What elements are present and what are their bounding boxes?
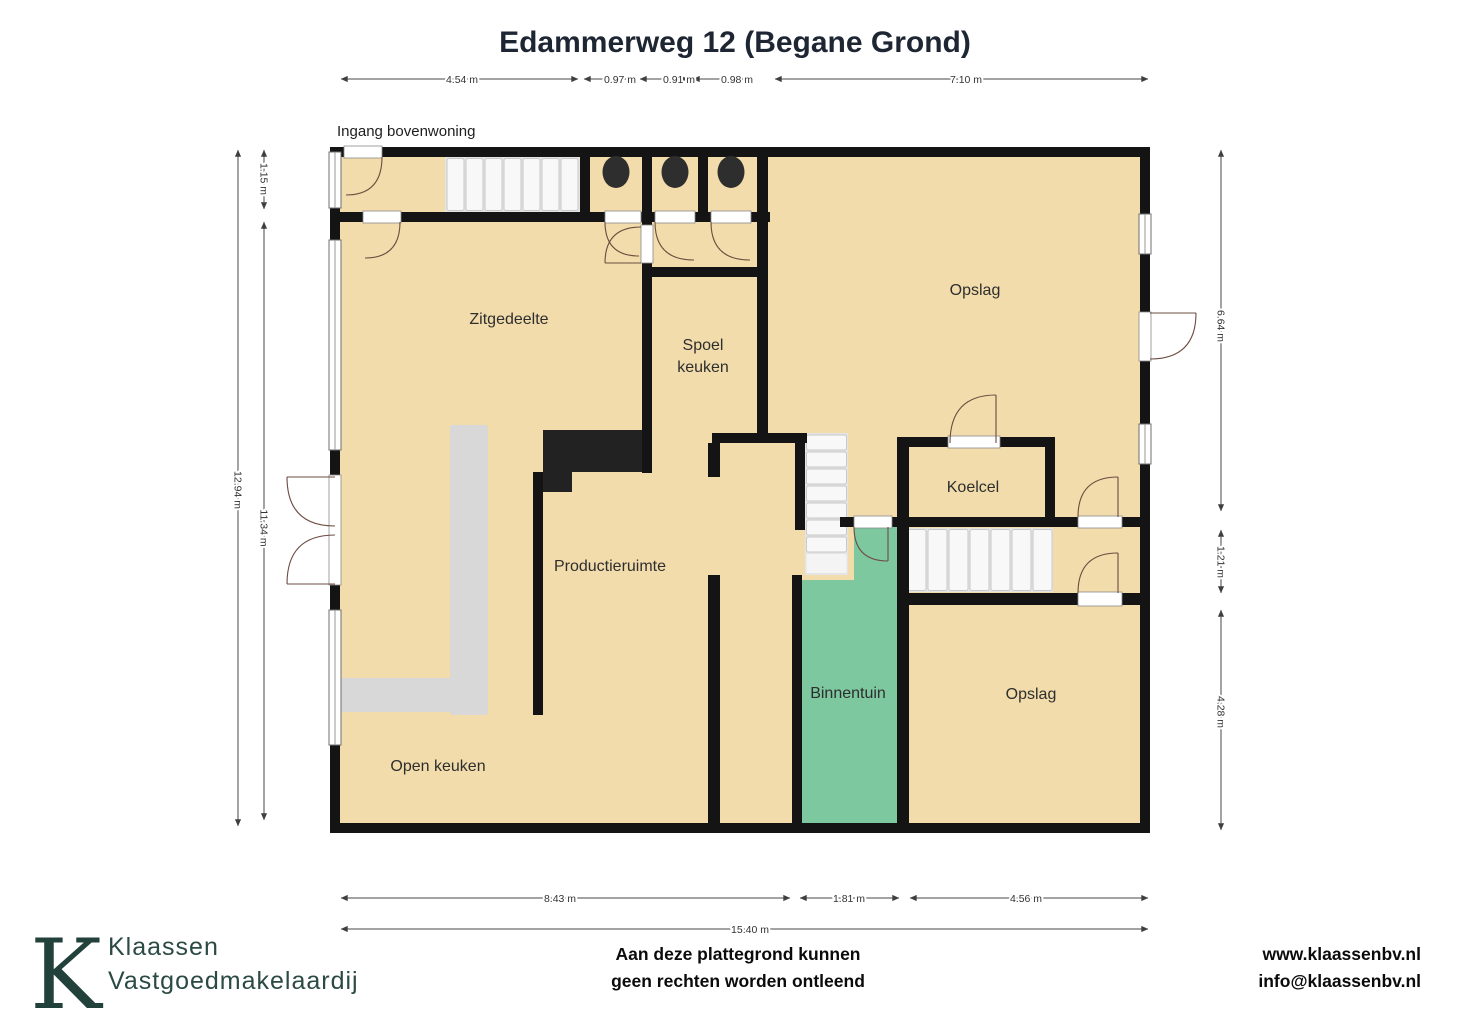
room-label-opslag-bottom: Opslag: [1006, 686, 1057, 703]
door-icon: [1139, 312, 1196, 361]
page-title: Edammerweg 12 (Begane Grond): [499, 26, 971, 59]
floor-plan: Zitgedeelte Spoel keuken Opslag Koelcel …: [287, 123, 1196, 833]
disclaimer-line-1: Aan deze plattegrond kunnen: [615, 944, 860, 964]
dim-top-4: 0.98 m: [721, 74, 753, 86]
window-icon: [329, 610, 341, 745]
dim-bottom-2: 1.81 m: [833, 893, 865, 905]
dim-left-1: 1.15 m: [258, 163, 270, 195]
toilet-icon: [718, 156, 745, 188]
entrance-note: Ingang bovenwoning: [337, 123, 475, 140]
toilet-icon: [603, 156, 630, 188]
staircase-storage: [905, 528, 1053, 592]
window-icon: [329, 152, 341, 208]
dim-total-width: 15.40 m: [731, 924, 769, 936]
room-label-open-keuken: Open keuken: [390, 758, 485, 775]
room-label-koelcel: Koelcel: [947, 479, 999, 496]
brand-suffix: Vastgoedmakelaardij: [108, 967, 359, 995]
window-icon: [329, 240, 341, 450]
dim-top-2: 0.97 m: [604, 74, 636, 86]
staircase-entrance: [445, 157, 580, 212]
toilet-icon: [662, 156, 689, 188]
window-icon: [1139, 424, 1151, 464]
disclaimer-line-2: geen rechten worden ontleend: [611, 971, 865, 991]
dim-top-5: 7.10 m: [950, 74, 982, 86]
dim-top-3: 0.91 m: [663, 74, 695, 86]
dim-bottom-1: 8.43 m: [544, 893, 576, 905]
dim-right-3: 4.28 m: [1215, 696, 1227, 728]
room-label-spoelkeuken-1: Spoel: [683, 337, 724, 354]
logo-k-icon: K: [30, 919, 104, 1031]
dim-left-3: 11.34 m: [258, 509, 270, 546]
footer-email-link[interactable]: info@klaassenbv.nl: [1258, 971, 1421, 991]
dim-bottom-3: 4.56 m: [1010, 893, 1042, 905]
dim-right-2: 1.21 m: [1215, 546, 1227, 578]
dim-left-2: 12.94 m: [232, 471, 244, 509]
room-label-binnentuin: Binnentuin: [810, 685, 886, 702]
footer: K Klaassen Vastgoedmakelaardij Aan deze …: [30, 919, 1421, 1031]
window-icon: [1139, 214, 1151, 254]
footer-website-link[interactable]: www.klaassenbv.nl: [1261, 944, 1421, 964]
dim-top-1: 4.54 m: [446, 74, 478, 86]
room-label-productieruimte: Productieruimte: [554, 558, 666, 575]
staircase-courtyard: [805, 433, 848, 575]
room-label-opslag-top: Opslag: [950, 282, 1001, 299]
double-door-icon: [287, 475, 341, 585]
floorplan-page: Edammerweg 12 (Begane Grond) 4.54 m 0.97…: [0, 0, 1466, 1033]
brand-name: Klaassen: [108, 933, 219, 961]
room-label-zitgedeelte: Zitgedeelte: [469, 311, 548, 328]
brand-logo: K Klaassen Vastgoedmakelaardij: [30, 919, 359, 1031]
dim-right-1: 6.64 m: [1215, 310, 1227, 342]
room-label-spoelkeuken-2: keuken: [677, 359, 729, 376]
toilets: [603, 156, 745, 188]
